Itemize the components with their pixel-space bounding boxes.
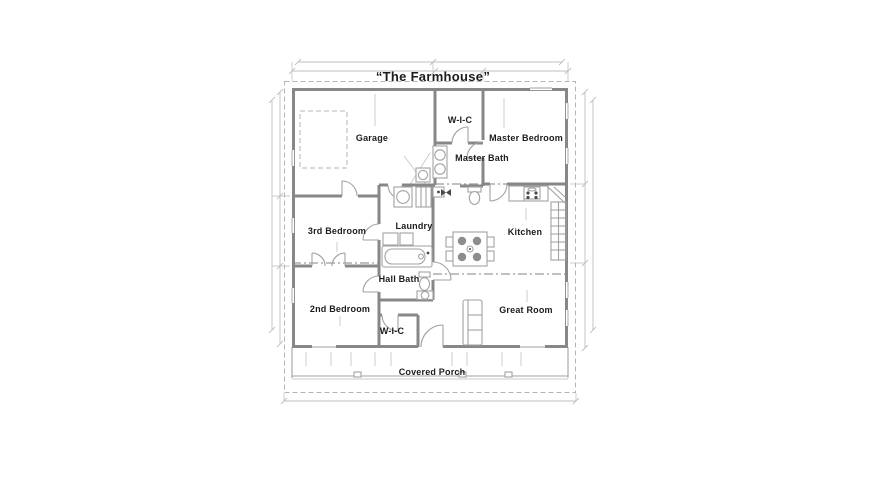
floor-plan-drawing: “The Farmhouse” Garage W-I-C Master Bedr… — [0, 0, 890, 500]
dining-set — [446, 232, 494, 266]
front-door-arc — [421, 325, 443, 347]
room-label-covered-porch: Covered Porch — [399, 367, 466, 377]
toilet-tank — [419, 272, 430, 277]
second-bedroom-door-arc — [363, 276, 379, 292]
room-label-master-closet: W-I-C — [448, 115, 473, 125]
great-room-fixtures — [463, 300, 482, 345]
toilet — [420, 278, 430, 291]
dryer — [416, 187, 431, 207]
master-bedroom-door-arc — [490, 184, 507, 201]
kitchen-fixtures — [509, 186, 566, 260]
bath-vanity — [417, 291, 433, 300]
floor-plan-page: “The Farmhouse” Garage W-I-C Master Bedr… — [0, 0, 890, 500]
room-label-garage: Garage — [356, 133, 388, 143]
dining-chair — [487, 237, 494, 247]
section-marker — [446, 189, 451, 196]
garage-attic-outline — [300, 111, 347, 168]
dining-chair — [487, 251, 494, 261]
toilet — [469, 192, 479, 205]
room-label-second-closet: W-I-C — [380, 326, 405, 336]
room-label-third-bedroom: 3rd Bedroom — [308, 226, 366, 236]
room-label-great-room: Great Room — [499, 305, 553, 315]
room-label-second-bedroom: 2nd Bedroom — [310, 304, 370, 314]
room-label-laundry: Laundry — [396, 221, 433, 231]
garage-fixtures — [300, 111, 430, 182]
closet-double-door-arcs — [312, 253, 345, 266]
porch-post — [354, 372, 361, 377]
double-vanity — [433, 146, 447, 178]
sofa — [463, 300, 482, 345]
porch-rafter-ticks — [306, 352, 521, 366]
laundry-counter — [400, 233, 413, 245]
dining-chair — [458, 237, 466, 245]
dining-chair — [473, 253, 481, 261]
garage-door-arc — [342, 181, 357, 196]
dining-chair — [446, 251, 453, 261]
plan-title: “The Farmhouse” — [376, 69, 490, 84]
dining-chair — [473, 237, 481, 245]
room-label-master-bedroom: Master Bedroom — [489, 133, 563, 143]
room-label-master-bath: Master Bath — [455, 153, 509, 163]
room-label-hall-bath: Hall Bath — [379, 274, 420, 284]
room-label-kitchen: Kitchen — [508, 227, 542, 237]
dining-chair — [458, 253, 466, 261]
master-closet-door-arc — [452, 127, 468, 143]
porch-post — [505, 372, 512, 377]
hall-bath-door-arc — [433, 262, 451, 280]
dining-chair — [446, 237, 453, 247]
laundry-counter — [383, 233, 398, 245]
